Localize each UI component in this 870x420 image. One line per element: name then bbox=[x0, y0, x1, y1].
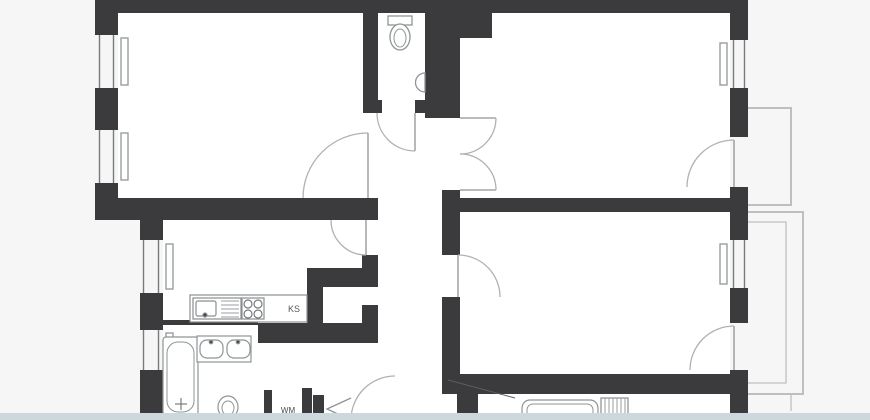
room-bottom-right-floor bbox=[460, 212, 730, 374]
toilet bbox=[388, 16, 412, 50]
double-washbasin bbox=[197, 336, 251, 362]
stove-4-burner bbox=[242, 298, 264, 319]
room-top-left-floor bbox=[118, 13, 363, 198]
kitchen-fixtures: KS bbox=[190, 295, 307, 322]
bathtub bbox=[163, 337, 198, 415]
floorplan: KS WM bbox=[0, 0, 870, 420]
kitchen-sink bbox=[193, 298, 241, 319]
footer-crop-bar bbox=[0, 413, 870, 420]
floorplan-drawing: KS WM bbox=[0, 0, 870, 420]
fridge-space-label: KS bbox=[288, 304, 300, 314]
